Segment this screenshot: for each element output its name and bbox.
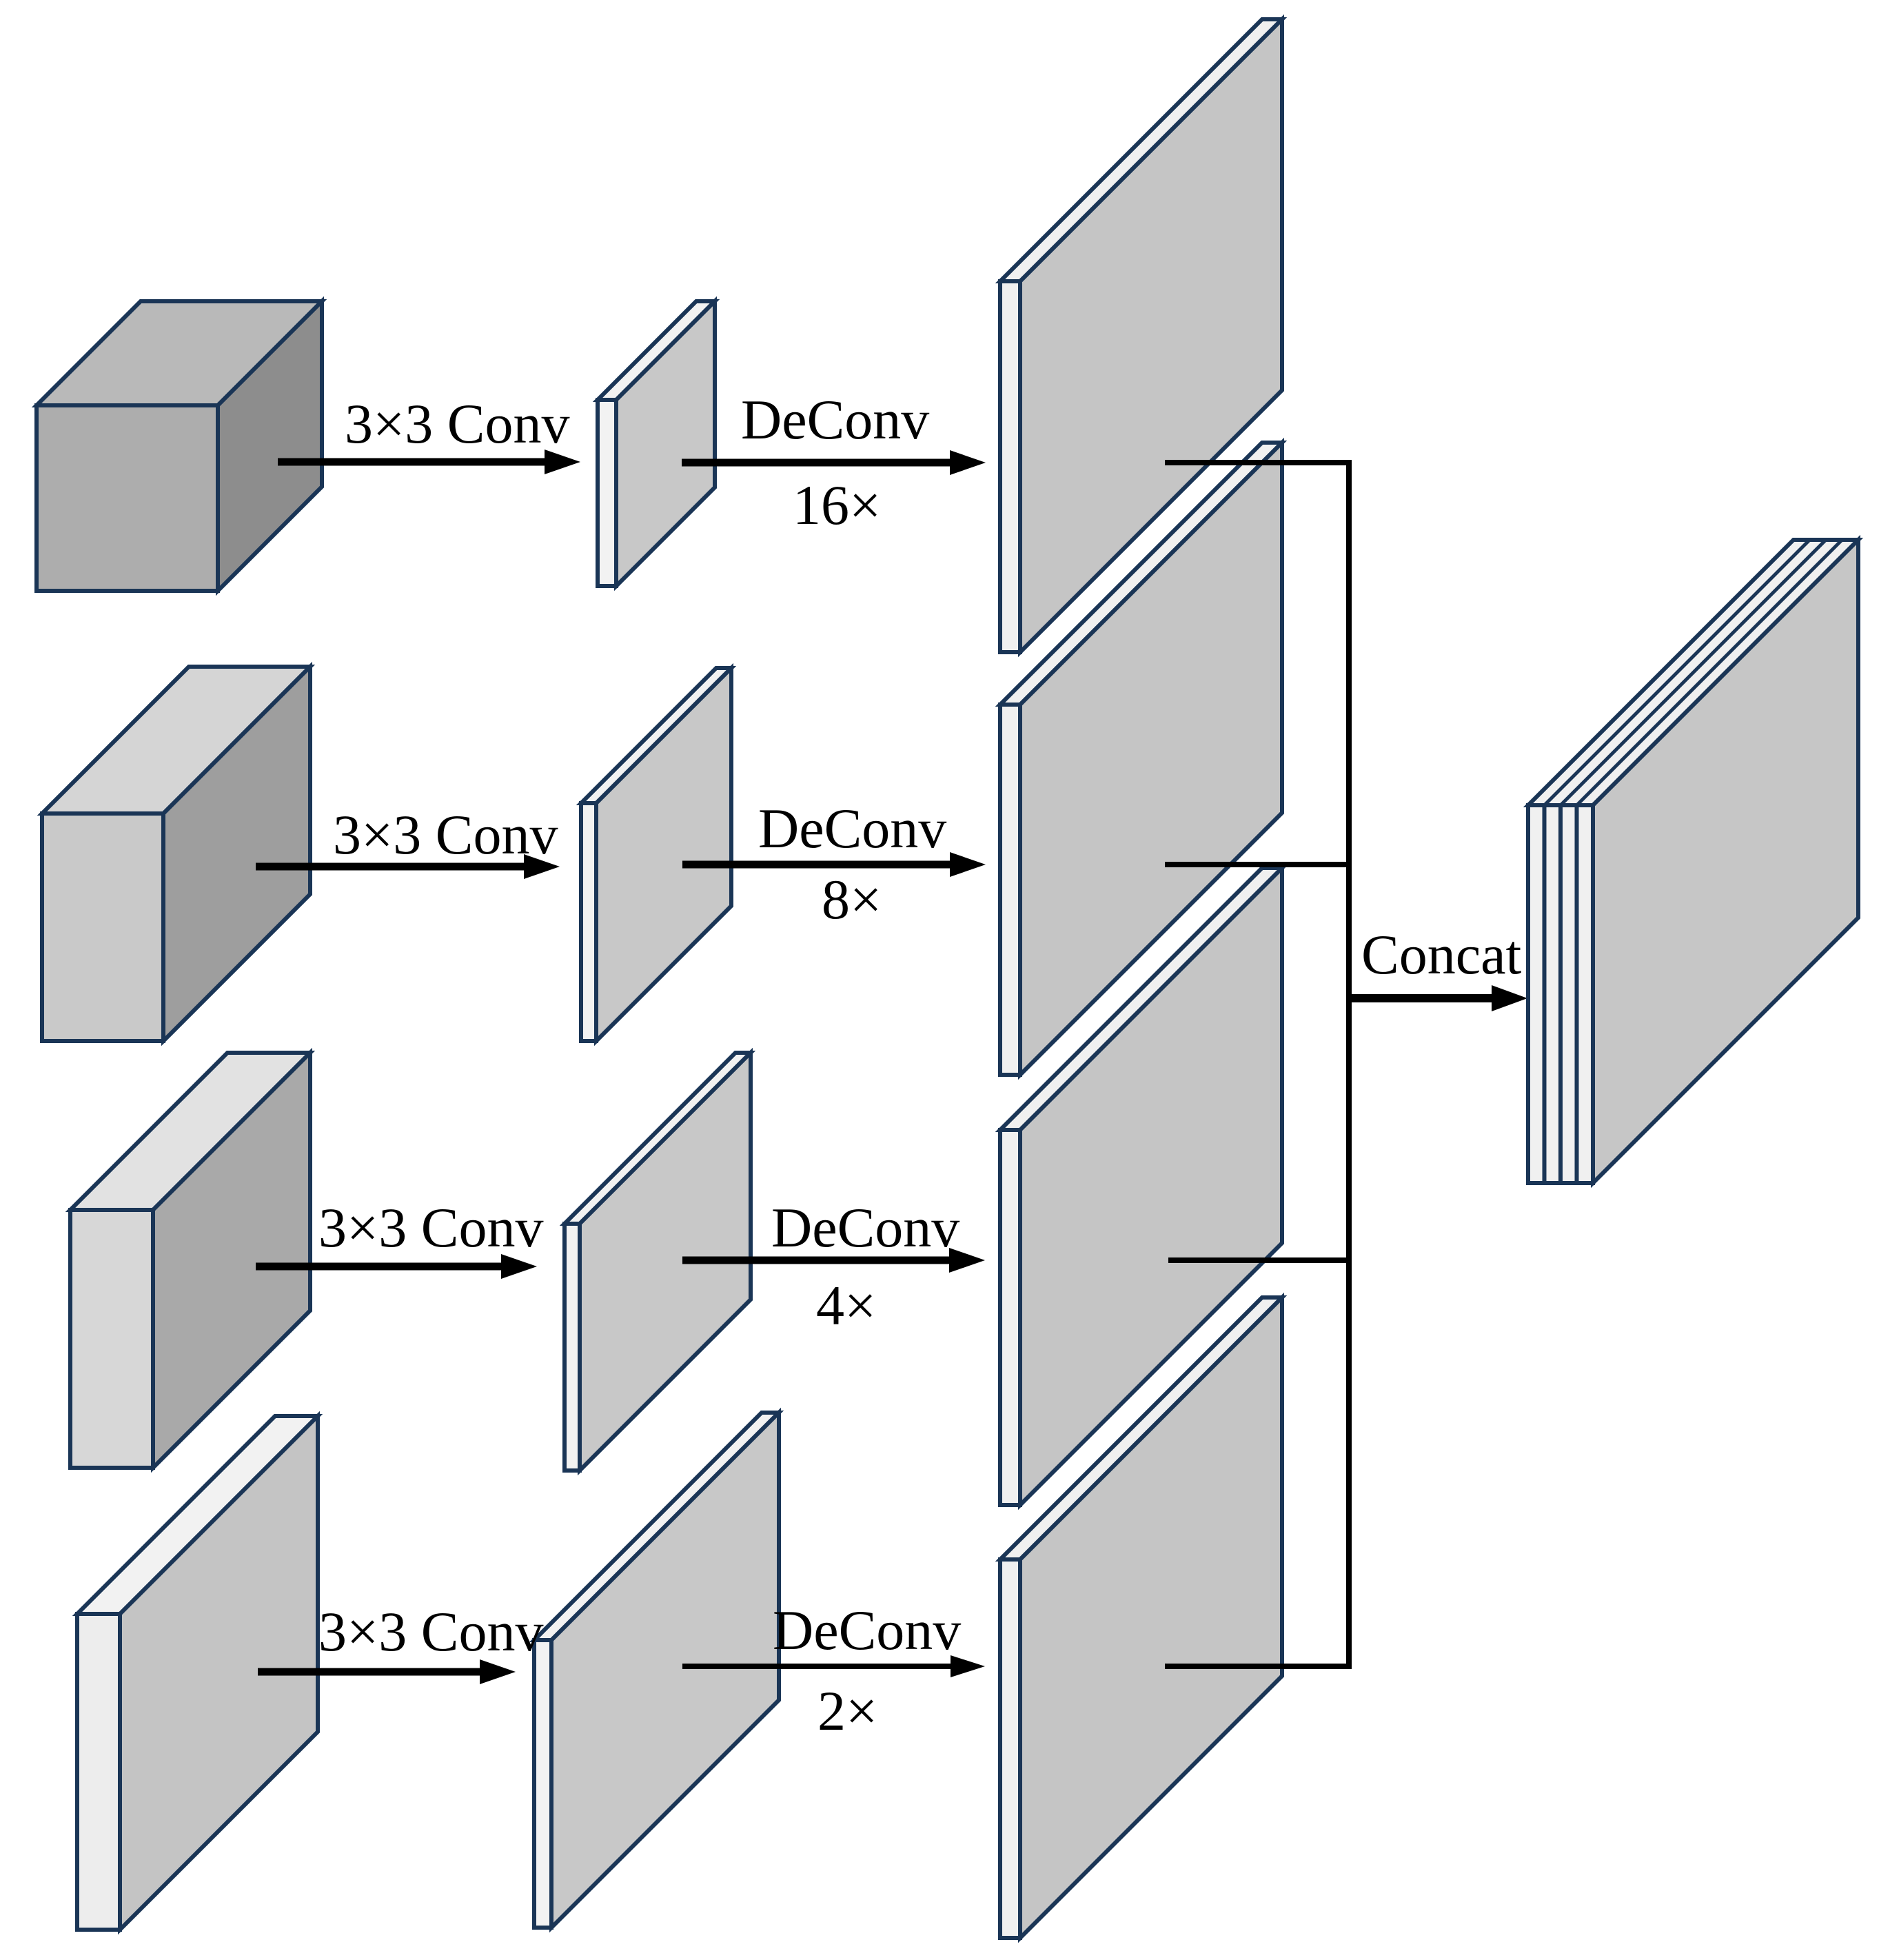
svg-text:DeConv: DeConv <box>741 388 929 451</box>
svg-text:3×3 Conv: 3×3 Conv <box>345 392 569 455</box>
svg-text:3×3 Conv: 3×3 Conv <box>333 803 558 866</box>
svg-text:3×3 Conv: 3×3 Conv <box>318 1196 543 1259</box>
svg-text:8×: 8× <box>822 868 882 931</box>
svg-text:16×: 16× <box>793 474 881 536</box>
svg-text:DeConv: DeConv <box>771 1196 959 1259</box>
svg-text:2×: 2× <box>817 1679 877 1742</box>
svg-text:DeConv: DeConv <box>773 1599 961 1661</box>
svg-text:4×: 4× <box>816 1274 876 1337</box>
svg-text:Concat: Concat <box>1361 923 1521 986</box>
svg-text:3×3 Conv: 3×3 Conv <box>318 1600 543 1663</box>
svg-text:DeConv: DeConv <box>758 797 946 860</box>
